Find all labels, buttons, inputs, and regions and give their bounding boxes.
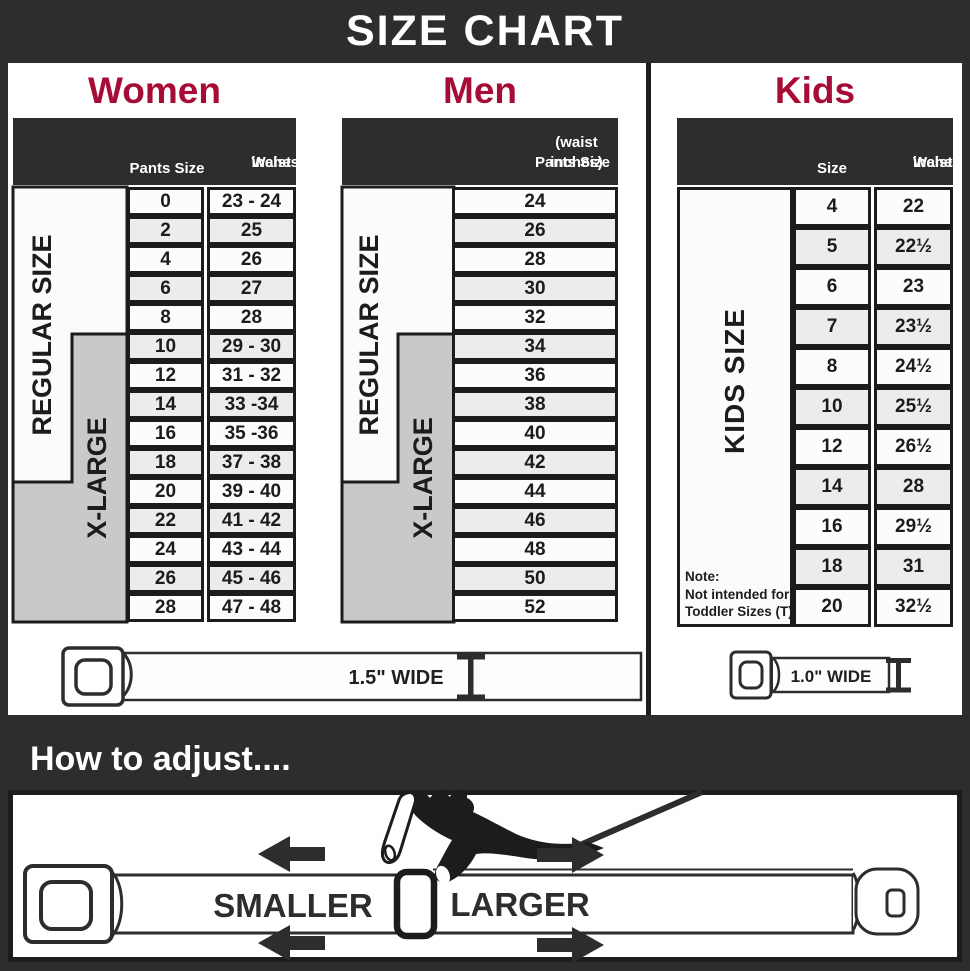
table-row: 426	[127, 245, 296, 274]
waist-cell: 22	[874, 187, 953, 227]
kids-heading: Kids	[677, 68, 953, 114]
pants-size-cell: 10	[127, 332, 204, 361]
pants-size-cell: 0	[127, 187, 204, 216]
table-row: 32	[452, 303, 618, 332]
table-row: 1226½	[793, 427, 953, 467]
table-row: 2039 - 40	[127, 477, 296, 506]
table-row: 26	[452, 216, 618, 245]
section-divider	[646, 63, 651, 715]
size-cell: 6	[793, 267, 871, 307]
table-row: 225	[127, 216, 296, 245]
pants-size-cell: 2	[127, 216, 204, 245]
pants-size-cell: 46	[452, 506, 618, 535]
waist-cell: 39 - 40	[207, 477, 296, 506]
table-row: 1635 -36	[127, 419, 296, 448]
pants-size-cell: 6	[127, 274, 204, 303]
table-row: 623	[793, 267, 953, 307]
women-col-waist: Waistinches	[207, 159, 296, 179]
pants-size-cell: 22	[127, 506, 204, 535]
kids-table-body: 422522½623723½824½1025½1226½14281629½183…	[793, 187, 953, 627]
table-row: 44	[452, 477, 618, 506]
pants-size-cell: 14	[127, 390, 204, 419]
kids-table-header: Size Waistinches	[677, 118, 953, 185]
women-col-pants-size: Pants Size	[127, 159, 207, 179]
table-row: 1231 - 32	[127, 361, 296, 390]
men-table-body: 242628303234363840424446485052	[452, 187, 618, 622]
waist-cell: 28	[874, 467, 953, 507]
table-row: 30	[452, 274, 618, 303]
men-regular-size-label: REGULAR SIZE	[354, 234, 384, 435]
table-row: 2032½	[793, 587, 953, 627]
men-heading: Men	[342, 68, 618, 114]
waist-cell: 28	[207, 303, 296, 332]
pants-size-cell: 38	[452, 390, 618, 419]
women-heading: Women	[13, 68, 296, 114]
adult-belt-width-label: 1.5" WIDE	[348, 667, 443, 689]
table-row: 723½	[793, 307, 953, 347]
waist-cell: 23½	[874, 307, 953, 347]
table-row: 2645 - 46	[127, 564, 296, 593]
pants-size-cell: 30	[452, 274, 618, 303]
pants-size-cell: 52	[452, 593, 618, 622]
pants-size-cell: 28	[452, 245, 618, 274]
kids-belt-graphic: 1.0" WIDE	[677, 643, 953, 715]
waist-cell: 32½	[874, 587, 953, 627]
waist-cell: 25½	[874, 387, 953, 427]
pants-size-cell: 24	[452, 187, 618, 216]
table-row: 1029 - 30	[127, 332, 296, 361]
women-table-header: Pants Size Waistinches	[13, 118, 296, 185]
waist-cell: 23 - 24	[207, 187, 296, 216]
table-row: 1025½	[793, 387, 953, 427]
belt-adjuster	[397, 872, 434, 936]
waist-cell: 24½	[874, 347, 953, 387]
table-row: 42	[452, 448, 618, 477]
waist-cell: 31	[874, 547, 953, 587]
page-title: SIZE CHART	[346, 7, 624, 56]
adult-belt-graphic: 1.5" WIDE	[13, 643, 643, 715]
pants-size-cell: 42	[452, 448, 618, 477]
table-row: 023 - 24	[127, 187, 296, 216]
table-row: 52	[452, 593, 618, 622]
kids-belt-width-label: 1.0" WIDE	[791, 667, 872, 686]
waist-cell: 26½	[874, 427, 953, 467]
table-row: 1433 -34	[127, 390, 296, 419]
kids-size-label-box: KIDS SIZE Note: Not intended for Toddler…	[677, 187, 793, 627]
pants-size-cell: 8	[127, 303, 204, 332]
waist-cell: 22½	[874, 227, 953, 267]
waist-cell: 29½	[874, 507, 953, 547]
men-size-range-labels: REGULAR SIZE X-LARGE	[340, 185, 456, 625]
table-row: 28	[452, 245, 618, 274]
size-cell: 7	[793, 307, 871, 347]
adjust-heading: How to adjust....	[30, 740, 291, 779]
table-row: 46	[452, 506, 618, 535]
smaller-label: SMALLER	[213, 887, 373, 924]
pants-size-cell: 16	[127, 419, 204, 448]
table-row: 1837 - 38	[127, 448, 296, 477]
pants-size-cell: 50	[452, 564, 618, 593]
waist-cell: 43 - 44	[207, 535, 296, 564]
waist-cell: 35 -36	[207, 419, 296, 448]
larger-label: LARGER	[450, 886, 590, 923]
table-row: 2847 - 48	[127, 593, 296, 622]
pants-size-cell: 24	[127, 535, 204, 564]
pants-size-cell: 36	[452, 361, 618, 390]
pants-size-cell: 20	[127, 477, 204, 506]
table-row: 1428	[793, 467, 953, 507]
waist-cell: 26	[207, 245, 296, 274]
kids-note: Note: Not intended for Toddler Sizes (T)	[685, 568, 793, 621]
pants-size-cell: 48	[452, 535, 618, 564]
pants-size-cell: 18	[127, 448, 204, 477]
pants-size-cell: 40	[452, 419, 618, 448]
men-xlarge-label: X-LARGE	[408, 417, 438, 539]
table-row: 2241 - 42	[127, 506, 296, 535]
pants-size-cell: 4	[127, 245, 204, 274]
size-cell: 16	[793, 507, 871, 547]
table-row: 522½	[793, 227, 953, 267]
men-col-pants-size: Pants Size(waist inches)	[452, 159, 618, 179]
waist-cell: 29 - 30	[207, 332, 296, 361]
table-row: 1629½	[793, 507, 953, 547]
table-row: 34	[452, 332, 618, 361]
table-row: 828	[127, 303, 296, 332]
table-row: 824½	[793, 347, 953, 387]
women-regular-size-label: REGULAR SIZE	[27, 234, 57, 435]
larger-arrow-top	[537, 837, 604, 873]
kids-size-label: KIDS SIZE	[719, 308, 751, 454]
men-table-header: Pants Size(waist inches)	[342, 118, 618, 185]
pants-size-cell: 28	[127, 593, 204, 622]
women-xlarge-label: X-LARGE	[82, 417, 112, 539]
title-banner: SIZE CHART	[0, 0, 970, 63]
waist-cell: 25	[207, 216, 296, 245]
smaller-arrow-top	[258, 836, 325, 872]
table-row: 422	[793, 187, 953, 227]
table-row: 2443 - 44	[127, 535, 296, 564]
waist-cell: 41 - 42	[207, 506, 296, 535]
table-row: 36	[452, 361, 618, 390]
size-cell: 10	[793, 387, 871, 427]
waist-cell: 31 - 32	[207, 361, 296, 390]
size-cell: 18	[793, 547, 871, 587]
waist-cell: 45 - 46	[207, 564, 296, 593]
kids-col-waist: Waistinches	[873, 159, 953, 179]
waist-cell: 23	[874, 267, 953, 307]
size-cell: 5	[793, 227, 871, 267]
table-row: 627	[127, 274, 296, 303]
pants-size-cell: 26	[452, 216, 618, 245]
size-cell: 8	[793, 347, 871, 387]
waist-cell: 27	[207, 274, 296, 303]
table-row: 50	[452, 564, 618, 593]
women-size-range-labels: REGULAR SIZE X-LARGE	[11, 185, 129, 625]
pants-size-cell: 44	[452, 477, 618, 506]
waist-cell: 47 - 48	[207, 593, 296, 622]
table-row: 48	[452, 535, 618, 564]
waist-cell: 37 - 38	[207, 448, 296, 477]
adjust-illustration: SMALLER LARGER	[8, 790, 962, 962]
kids-col-size: Size	[793, 159, 871, 179]
size-cell: 14	[793, 467, 871, 507]
size-chart-page: SIZE CHART Women Men Kids Pants Size Wai…	[0, 0, 970, 971]
pants-size-cell: 34	[452, 332, 618, 361]
pants-size-cell: 32	[452, 303, 618, 332]
table-row: 1831	[793, 547, 953, 587]
women-table-body: 023 - 242254266278281029 - 301231 - 3214…	[127, 187, 296, 622]
pants-size-cell: 26	[127, 564, 204, 593]
size-cell: 12	[793, 427, 871, 467]
pants-size-cell: 12	[127, 361, 204, 390]
waist-cell: 33 -34	[207, 390, 296, 419]
size-cell: 20	[793, 587, 871, 627]
table-row: 24	[452, 187, 618, 216]
size-cell: 4	[793, 187, 871, 227]
table-row: 40	[452, 419, 618, 448]
table-row: 38	[452, 390, 618, 419]
